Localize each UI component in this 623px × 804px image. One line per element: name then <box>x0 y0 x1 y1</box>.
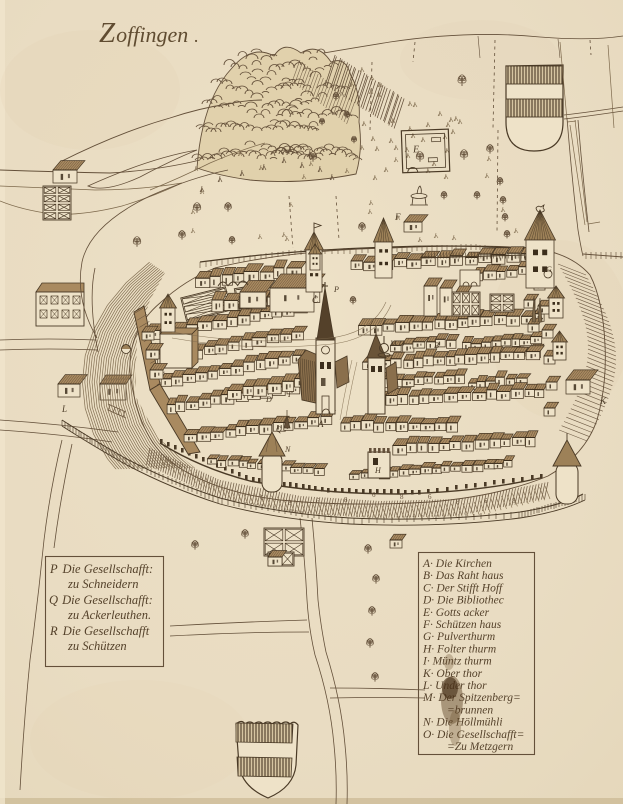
svg-text:Q Die Gesellschafft:: Q Die Gesellschafft: <box>49 593 153 607</box>
svg-text:O· Die Gesellschafft=: O· Die Gesellschafft= <box>423 729 524 741</box>
svg-text:P Die Gesellschafft:: P Die Gesellschafft: <box>49 562 153 576</box>
svg-text:G: G <box>546 265 552 274</box>
svg-text:H· Folter thurm: H· Folter thurm <box>422 643 496 655</box>
svg-text:B: B <box>434 341 439 350</box>
svg-text:P: P <box>333 285 339 294</box>
svg-text:D· Die Bibliothec: D· Die Bibliothec <box>422 595 504 607</box>
svg-text:6: 6 <box>484 497 488 505</box>
svg-text:8: 8 <box>456 498 460 506</box>
svg-text:E: E <box>412 144 419 155</box>
svg-text:O: O <box>399 339 405 348</box>
svg-text:A· Die Kirchen: A· Die Kirchen <box>422 558 492 570</box>
svg-text:K: K <box>599 396 607 406</box>
svg-text:zu Schützen: zu Schützen <box>67 639 127 653</box>
svg-text:G· Pulverthurm: G· Pulverthurm <box>423 631 495 643</box>
svg-text:8: 8 <box>512 497 516 505</box>
svg-text:M: M <box>389 339 398 348</box>
svg-text:C· Der Stifft Hoff: C· Der Stifft Hoff <box>423 582 504 594</box>
svg-text:zu Ackerleuthen.: zu Ackerleuthen. <box>67 608 151 622</box>
svg-text:Q: Q <box>276 425 282 434</box>
svg-text:Zoffingen.: Zoffingen. <box>99 17 199 49</box>
svg-text:6: 6 <box>428 493 432 501</box>
svg-text:R Die Gesellschafft: R Die Gesellschafft <box>49 624 150 638</box>
svg-text:8: 8 <box>288 499 292 507</box>
svg-text:8: 8 <box>344 496 348 504</box>
svg-text:6: 6 <box>372 491 376 499</box>
svg-text:F· Schützen haus: F· Schützen haus <box>422 619 502 631</box>
svg-text:6: 6 <box>260 494 264 502</box>
svg-text:M· Der Spitzenberg=: M· Der Spitzenberg= <box>422 692 521 704</box>
svg-text:6: 6 <box>316 497 320 505</box>
svg-text:N: N <box>284 445 291 454</box>
svg-text:E· Gotts acker: E· Gotts acker <box>422 607 490 619</box>
svg-text:L: L <box>61 404 67 414</box>
svg-text:8: 8 <box>400 493 404 501</box>
svg-text:A: A <box>317 419 324 429</box>
svg-text:I· Müntz thurm: I· Müntz thurm <box>422 656 492 668</box>
svg-text:C: C <box>312 295 319 305</box>
svg-text:B· Das Raht haus: B· Das Raht haus <box>423 570 504 582</box>
svg-text:N· Die Höllmühli: N· Die Höllmühli <box>422 717 503 729</box>
svg-text:D: D <box>265 395 272 404</box>
svg-text:I: I <box>287 390 291 399</box>
svg-text:zu Schneidern: zu Schneidern <box>67 577 138 591</box>
